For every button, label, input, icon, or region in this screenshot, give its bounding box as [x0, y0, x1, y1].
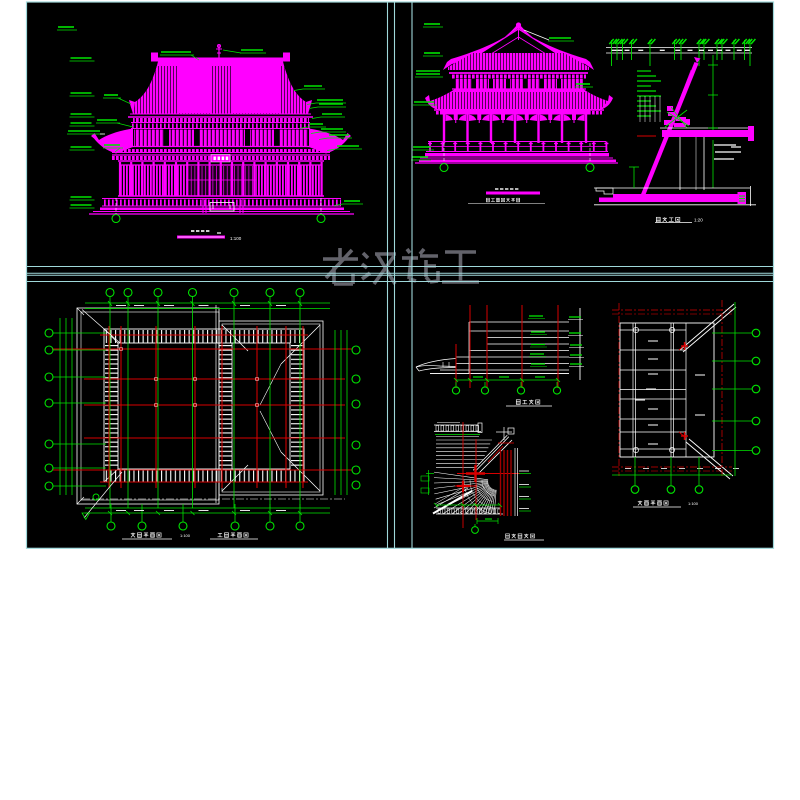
svg-text:1:100: 1:100 — [180, 533, 191, 538]
svg-text:1:100: 1:100 — [230, 236, 242, 241]
svg-text:1:20: 1:20 — [694, 218, 703, 223]
svg-text:1:100: 1:100 — [688, 501, 699, 506]
